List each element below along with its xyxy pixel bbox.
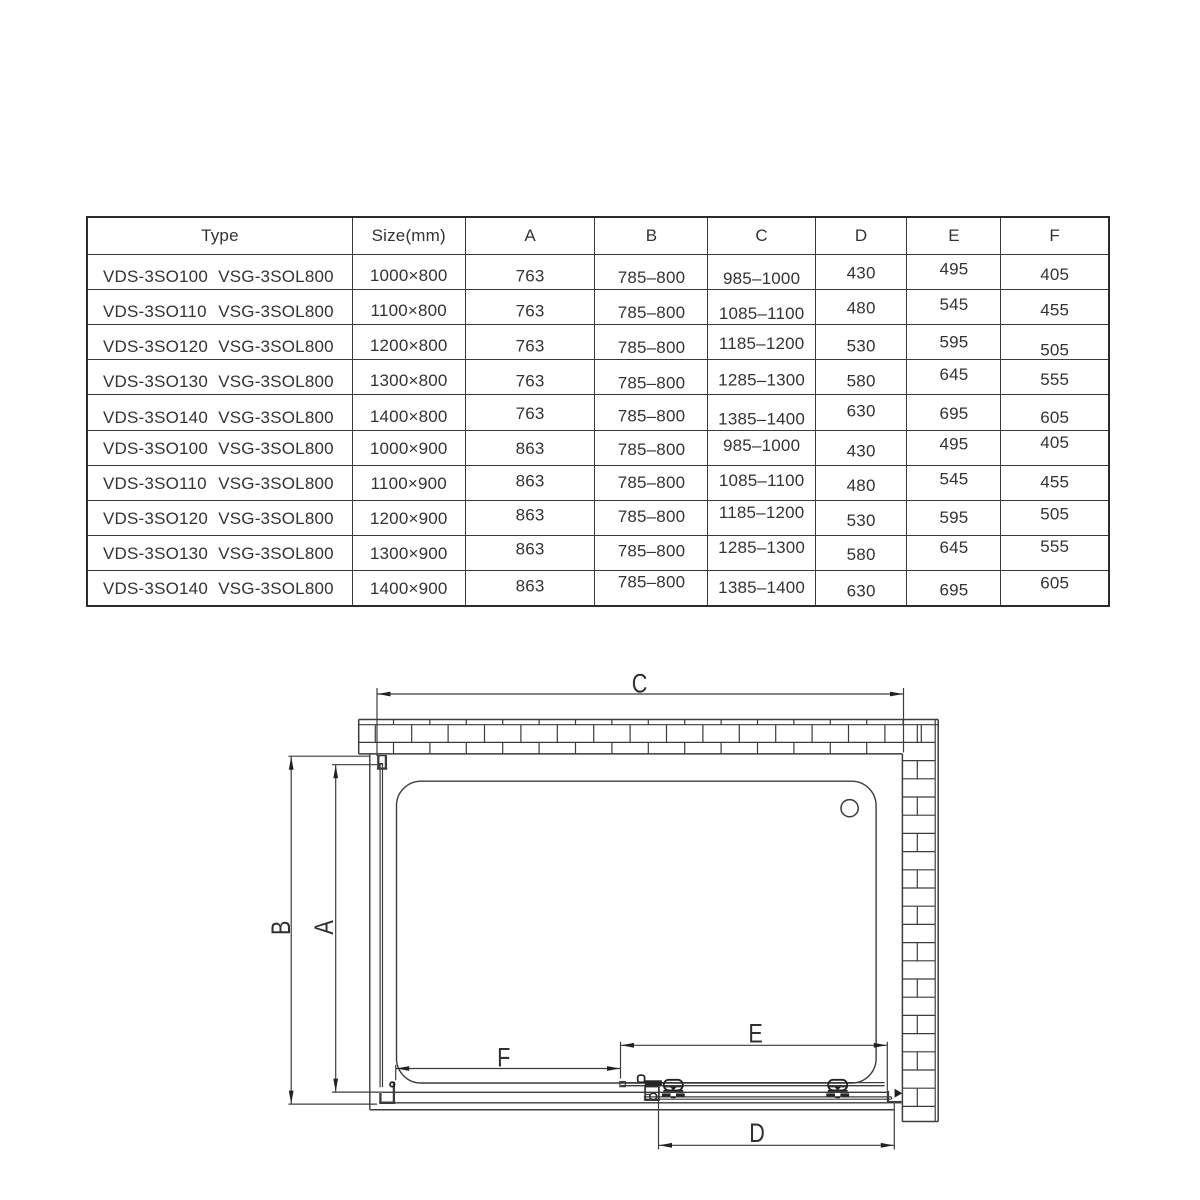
svg-text:C: C <box>632 669 648 699</box>
svg-text:F: F <box>497 1043 510 1073</box>
svg-text:B: B <box>267 921 297 935</box>
svg-text:E: E <box>748 1019 762 1049</box>
svg-text:A: A <box>310 920 340 935</box>
svg-text:D: D <box>749 1119 765 1149</box>
